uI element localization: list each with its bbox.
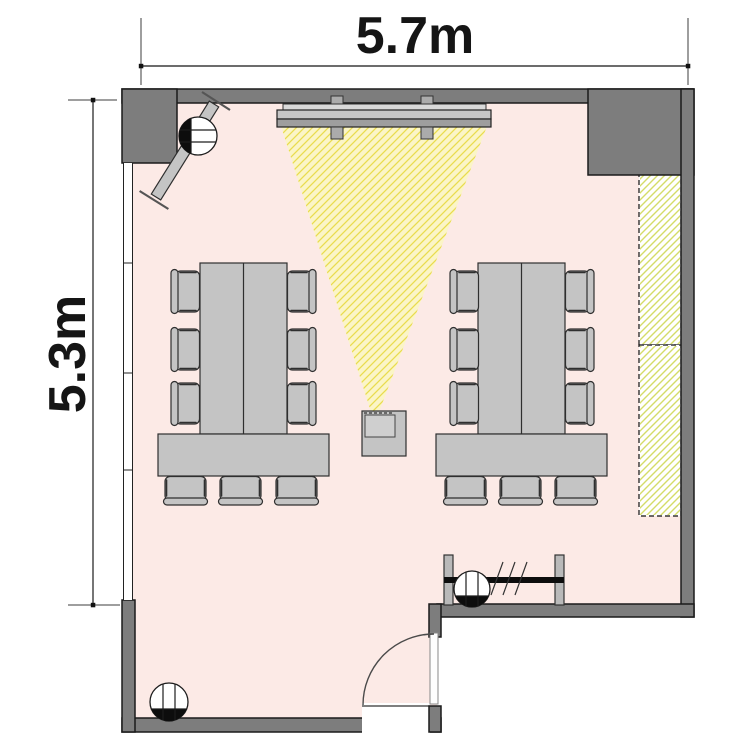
- screen-leg: [331, 127, 343, 139]
- chair: [171, 270, 200, 314]
- chair: [499, 477, 543, 506]
- chair: [171, 328, 200, 372]
- wall-stub: [429, 604, 441, 637]
- table-end: [436, 434, 607, 476]
- chair: [171, 382, 200, 426]
- floor-marker-bottom-left: [150, 683, 188, 721]
- door-jamb: [429, 706, 441, 732]
- chair: [288, 382, 317, 426]
- wall-cabinet-lower: [639, 345, 681, 516]
- chair: [275, 477, 319, 506]
- chair: [219, 477, 263, 506]
- pillar-top-left: [122, 89, 177, 163]
- screen-body: [277, 110, 491, 119]
- dimension-height-label: 5.3m: [38, 249, 98, 459]
- table-group-left: [158, 263, 329, 505]
- floor-plan-drawing: [0, 0, 750, 750]
- table-end: [158, 434, 329, 476]
- chair: [450, 328, 479, 372]
- screen-leg: [421, 127, 433, 139]
- wall-right: [681, 89, 694, 617]
- screen-body-lower: [277, 119, 491, 127]
- door-leaf: [430, 633, 438, 704]
- wall-cabinets: [639, 173, 681, 516]
- screen-top-bar: [283, 104, 486, 110]
- wall-cabinet-upper: [639, 173, 681, 345]
- chair: [288, 328, 317, 372]
- chair: [566, 328, 595, 372]
- window: [123, 163, 133, 600]
- pillar-top-right: [588, 89, 694, 175]
- chair: [450, 382, 479, 426]
- chair: [566, 382, 595, 426]
- chair: [554, 477, 598, 506]
- wall-bottom-left: [122, 600, 135, 732]
- chair: [566, 270, 595, 314]
- chair: [444, 477, 488, 506]
- floor-marker-top-left: [179, 117, 217, 155]
- chair: [164, 477, 208, 506]
- floor-plan: 5.7m 5.3m: [0, 0, 750, 750]
- table-group-right: [436, 263, 607, 505]
- chair: [450, 270, 479, 314]
- projector: [362, 411, 406, 456]
- dimension-width-label: 5.7m: [310, 6, 520, 66]
- floor-marker-bottom-right: [454, 571, 490, 607]
- chair: [288, 270, 317, 314]
